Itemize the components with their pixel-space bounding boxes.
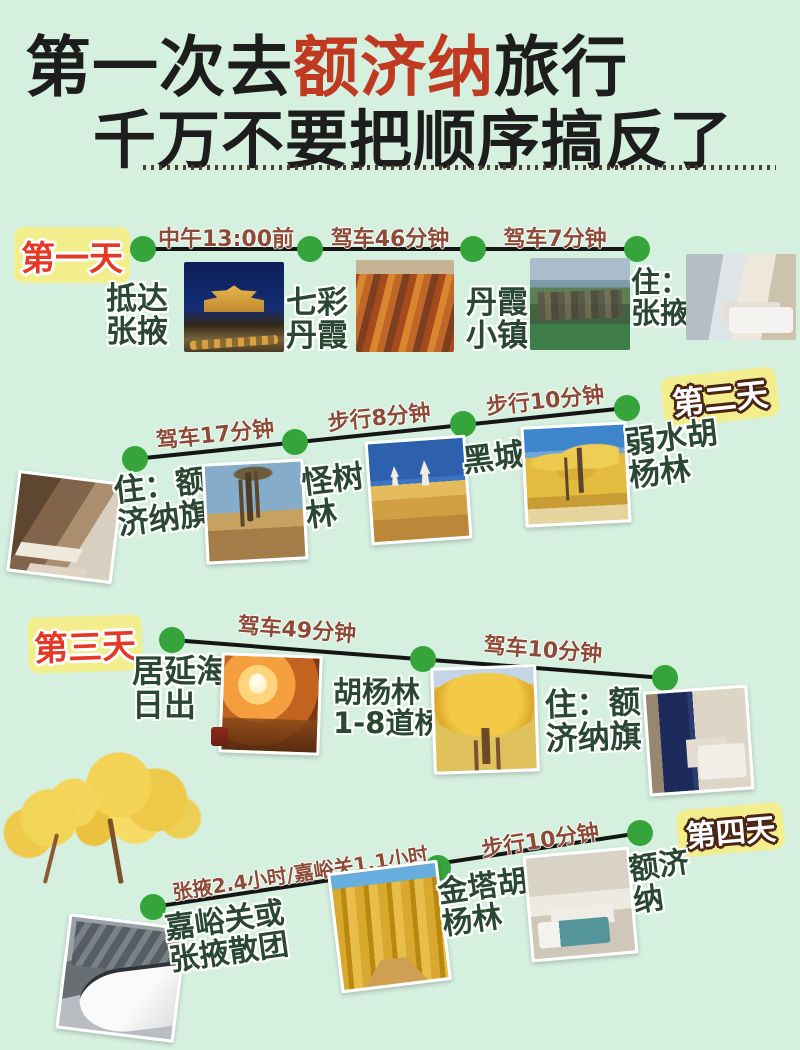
day4-badge: 第四天 <box>675 801 786 857</box>
danxia-town-photo <box>530 258 630 350</box>
ejina-hotel-photo <box>523 847 639 963</box>
day1-stop-label-zhangye-arrival: 抵达 张掖 <box>106 283 168 349</box>
travel-itinerary-poster: 第一次去额济纳旅行 千万不要把顺序搞反了 第一天 中午13:00前 驾车46分钟… <box>0 0 800 1050</box>
day3-stop-label-stay-ejinaqi: 住：额 济纳旗 <box>544 686 642 757</box>
day1-stop-label-stay-zhangye: 住： 张掖 <box>631 267 689 328</box>
day3-stop-label-juyanhai-sunrise: 居延海 日出 <box>132 655 228 723</box>
watermark-logo <box>211 727 228 746</box>
day3-timeline-dot-3 <box>652 665 678 691</box>
autumn-tree-illustration <box>0 740 205 890</box>
title-dotted-underline <box>143 165 776 170</box>
day1-stop-label-danxia-town: 丹霞 小镇 <box>466 287 528 353</box>
day1-segment-drive-46min: 驾车46分钟 <box>320 221 460 253</box>
qicai-danxia-photo <box>356 260 454 352</box>
ejinaqi-hotel-photo-2 <box>642 684 754 796</box>
day2-timeline-dot-3 <box>450 411 476 437</box>
jinta-populus-photo <box>327 860 452 994</box>
day1-timeline-dot-3 <box>460 236 486 262</box>
day3-stop-label-populus-bridges: 胡杨林 1-8道桥 <box>333 677 443 738</box>
day4-stop-label-jiayuguan-or-zhangye: 嘉峪关或 张掖散团 <box>163 897 291 977</box>
day2-stop-label-heicheng: 黑城 <box>461 438 527 478</box>
day2-timeline-dot-4 <box>614 395 640 421</box>
day1-segment-arrival-time: 中午13:00前 <box>146 221 306 253</box>
day2-timeline-dot-2 <box>282 429 308 455</box>
ruoshui-populus-photo <box>520 421 631 527</box>
day2-segment-walk-10min: 步行10分钟 <box>479 376 612 421</box>
guaishulin-photo <box>201 458 308 564</box>
populus-bridges-photo <box>430 664 540 775</box>
day4-stop-label-jinta-populus: 金塔胡 杨林 <box>436 865 534 941</box>
ejinaqi-hotel-photo <box>6 470 124 584</box>
day1-segment-drive-7min: 驾车7分钟 <box>488 221 622 253</box>
day1-stop-label-qicai-danxia: 七彩 丹霞 <box>286 287 348 353</box>
day2-segment-walk-8min: 步行8分钟 <box>313 393 446 438</box>
day3-timeline-dot-1 <box>159 627 185 653</box>
day1-badge: 第一天 <box>14 227 130 283</box>
day2-stop-label-guaishulin: 怪树 林 <box>300 460 370 533</box>
zhangye-hotel-photo <box>686 254 796 340</box>
day4-timeline-dot-3 <box>627 820 653 846</box>
heicheng-photo <box>364 435 472 546</box>
day4-stop-label-ejina: 额济 纳 <box>627 847 695 918</box>
day2-stop-label-ruoshui-populus: 弱水胡 杨林 <box>623 417 723 494</box>
day2-timeline-dot-1 <box>122 446 148 472</box>
day2-stop-label-stay-ejinaqi: 住：额 济纳旗 <box>112 465 212 542</box>
day2-segment-drive-17min: 驾车17分钟 <box>149 410 282 455</box>
juyanhai-sunrise-photo <box>218 652 322 755</box>
day3-badge: 第三天 <box>27 614 143 674</box>
day3-segment-drive-49min: 驾车49分钟 <box>231 607 363 649</box>
zhangye-night-photo <box>184 262 284 352</box>
day4-timeline-dot-1 <box>140 894 166 920</box>
